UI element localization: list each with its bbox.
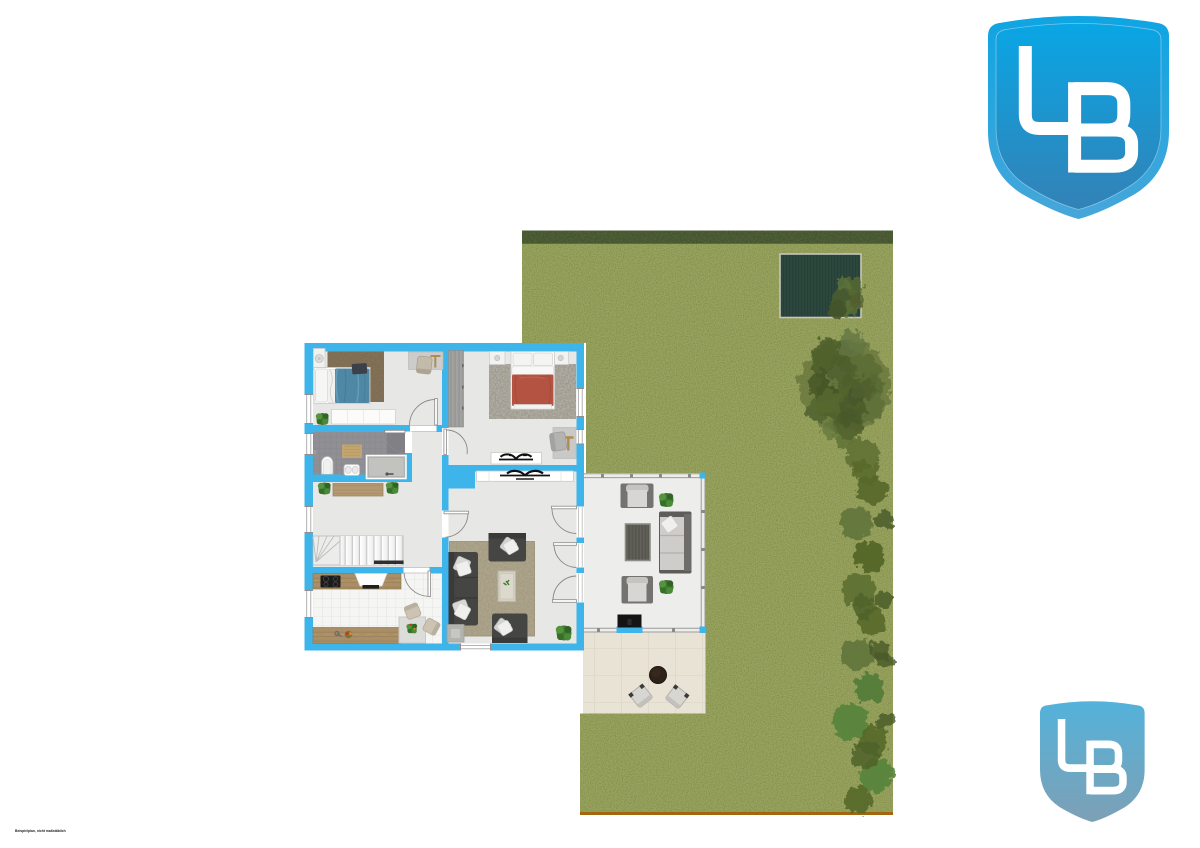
svg-text:Beispielplan, nicht maßstäblic: Beispielplan, nicht maßstäblich [15,829,66,833]
